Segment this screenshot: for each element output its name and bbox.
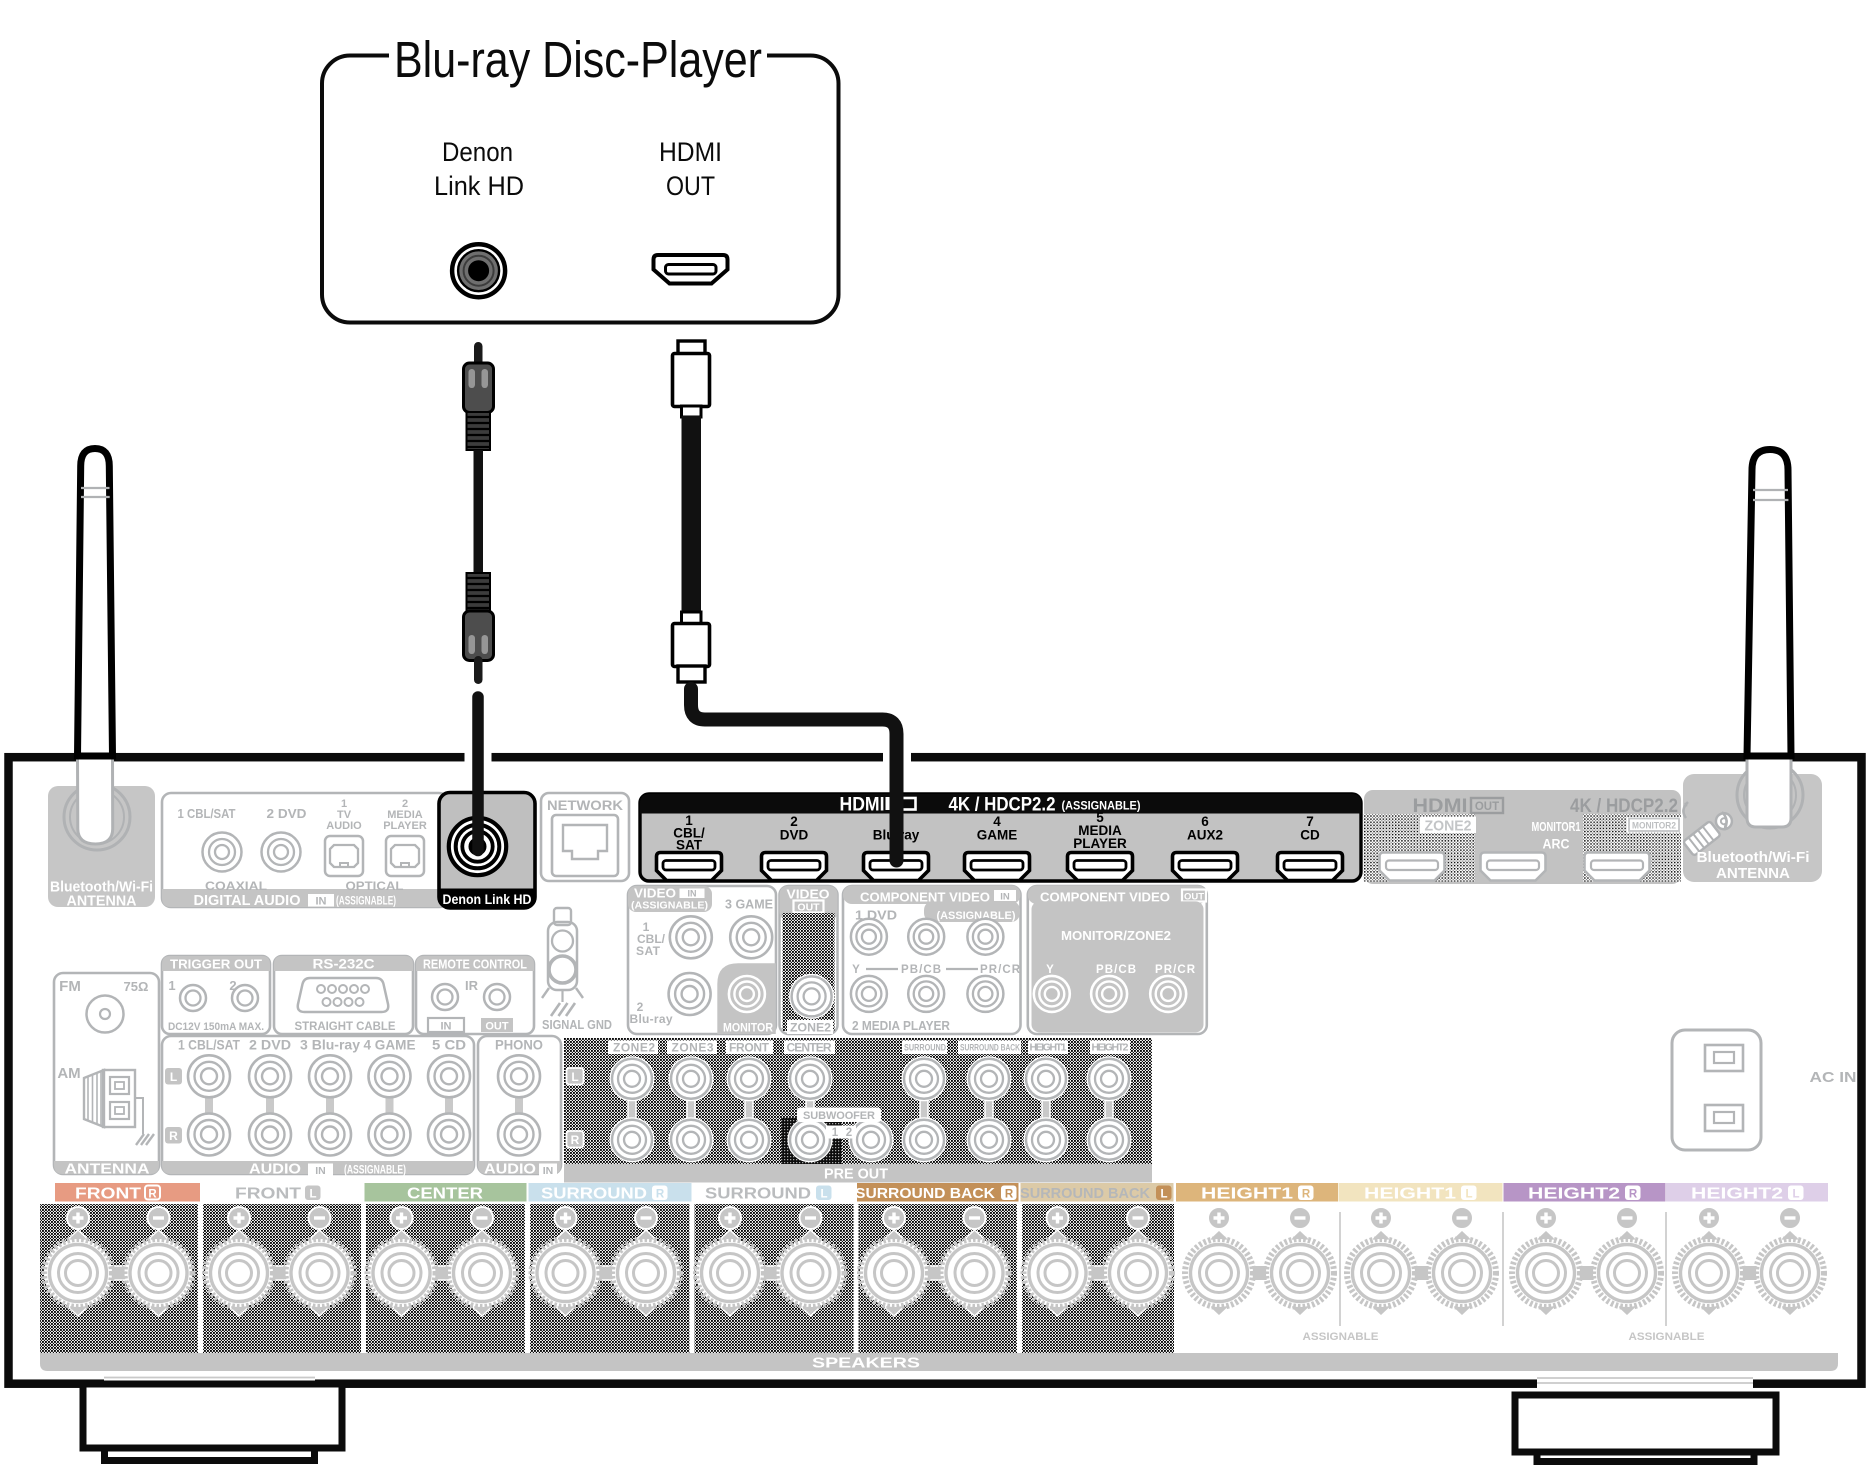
svg-text:AUX2: AUX2	[1187, 828, 1223, 843]
svg-text:SURROUND: SURROUND	[705, 1186, 811, 1203]
svg-text:SAT: SAT	[636, 944, 661, 958]
svg-text:1: 1	[168, 978, 175, 993]
svg-text:HDMI: HDMI	[659, 137, 722, 167]
svg-text:HEIGHT1: HEIGHT1	[1201, 1186, 1293, 1203]
svg-text:STRAIGHT CABLE: STRAIGHT CABLE	[295, 1019, 396, 1033]
svg-text:MONITOR2: MONITOR2	[1632, 821, 1676, 832]
svg-text:GAME: GAME	[977, 828, 1018, 843]
svg-text:Link HD: Link HD	[434, 171, 524, 201]
svg-text:PHONO: PHONO	[495, 1038, 543, 1053]
svg-text:HEIGHT1: HEIGHT1	[1030, 1042, 1067, 1054]
svg-text:ANTENNA: ANTENNA	[65, 1162, 151, 1178]
svg-text:R: R	[1629, 1189, 1638, 1201]
svg-text:FM: FM	[59, 978, 81, 995]
svg-text:R: R	[148, 1189, 157, 1201]
svg-text:FRONT: FRONT	[729, 1041, 770, 1055]
svg-text:MONITOR/ZONE2: MONITOR/ZONE2	[1061, 928, 1171, 943]
svg-text:L: L	[1465, 1189, 1472, 1201]
svg-text:R: R	[1005, 1189, 1014, 1201]
svg-text:Y: Y	[852, 964, 860, 976]
svg-text:OUT: OUT	[485, 1021, 509, 1033]
svg-text:CD: CD	[1300, 828, 1320, 843]
svg-text:SUBWOOFER: SUBWOOFER	[803, 1110, 875, 1122]
svg-text:ZONE2: ZONE2	[613, 1041, 655, 1055]
svg-text:Blu-ray Disc-Player: Blu-ray Disc-Player	[394, 31, 762, 88]
svg-text:(ASSIGNABLE): (ASSIGNABLE)	[631, 900, 708, 912]
svg-text:PLAYER: PLAYER	[383, 820, 427, 832]
svg-text:ZONE3: ZONE3	[672, 1041, 714, 1055]
svg-text:HDMI: HDMI	[840, 794, 885, 816]
svg-text:DIGITAL AUDIO: DIGITAL AUDIO	[194, 892, 301, 909]
svg-text:2 MEDIA PLAYER: 2 MEDIA PLAYER	[852, 1019, 950, 1033]
svg-text:FRONT: FRONT	[235, 1186, 301, 1203]
svg-text:HEIGHT2: HEIGHT2	[1691, 1186, 1783, 1203]
svg-text:R: R	[169, 1129, 178, 1143]
svg-text:VIDEO: VIDEO	[634, 887, 676, 901]
svg-text:AUDIO: AUDIO	[326, 820, 362, 832]
svg-text:SIGNAL GND: SIGNAL GND	[542, 1017, 612, 1032]
svg-text:DVD: DVD	[780, 828, 809, 843]
svg-text:OUT: OUT	[666, 171, 715, 201]
svg-text:AM: AM	[57, 1065, 80, 1082]
svg-text:OUT: OUT	[1184, 892, 1204, 903]
svg-text:(ASSIGNABLE): (ASSIGNABLE)	[344, 1165, 406, 1177]
svg-text:MONITOR: MONITOR	[723, 1023, 774, 1035]
svg-text:PB/CB: PB/CB	[901, 964, 941, 976]
svg-text:CENTER: CENTER	[407, 1186, 484, 1203]
svg-text:4K / HDCP2.2: 4K / HDCP2.2	[1570, 796, 1678, 817]
svg-text:SURROUND BACK: SURROUND BACK	[855, 1186, 996, 1202]
svg-text:SURROUND BACK: SURROUND BACK	[1020, 1186, 1151, 1202]
svg-text:SPEAKERS: SPEAKERS	[812, 1355, 920, 1372]
svg-text:R: R	[656, 1189, 665, 1201]
svg-text:SURROUND BACK: SURROUND BACK	[960, 1043, 1020, 1053]
svg-text:ANTENNA: ANTENNA	[1716, 865, 1790, 882]
svg-text:4 GAME: 4 GAME	[364, 1038, 416, 1053]
svg-text:ANTENNA: ANTENNA	[67, 894, 138, 910]
svg-text:1 CBL/SAT: 1 CBL/SAT	[178, 1038, 241, 1053]
svg-text:R: R	[1302, 1189, 1311, 1201]
svg-text:AUDIO: AUDIO	[484, 1162, 536, 1178]
svg-text:COAXIAL: COAXIAL	[205, 879, 267, 893]
svg-text:CENTER: CENTER	[787, 1041, 832, 1055]
svg-text:L: L	[571, 1070, 578, 1084]
svg-text:2 DVD: 2 DVD	[267, 806, 307, 821]
svg-text:75Ω: 75Ω	[124, 979, 149, 994]
svg-text:L: L	[1160, 1189, 1167, 1201]
svg-text:ASSIGNABLE: ASSIGNABLE	[1303, 1331, 1379, 1343]
svg-text:ARC: ARC	[1543, 837, 1570, 852]
svg-text:DC12V 150mA MAX.: DC12V 150mA MAX.	[168, 1021, 264, 1033]
svg-text:ASSIGNABLE: ASSIGNABLE	[1629, 1331, 1705, 1343]
svg-text:SURROUND: SURROUND	[904, 1043, 946, 1054]
svg-text:Denon Link HD: Denon Link HD	[443, 891, 532, 907]
svg-text:IN: IN	[441, 1021, 452, 1033]
svg-text:HEIGHT1: HEIGHT1	[1364, 1186, 1456, 1203]
svg-text:HEIGHT2: HEIGHT2	[1528, 1186, 1620, 1203]
svg-text:REMOTE CONTROL: REMOTE CONTROL	[423, 958, 527, 972]
svg-text:IN: IN	[316, 896, 327, 908]
svg-text:ZONE2: ZONE2	[1425, 818, 1472, 835]
svg-text:FRONT: FRONT	[75, 1186, 141, 1203]
svg-text:1 CBL/SAT: 1 CBL/SAT	[178, 806, 236, 821]
svg-text:COMPONENT VIDEO: COMPONENT VIDEO	[860, 890, 990, 905]
svg-text:Y: Y	[1046, 964, 1054, 976]
svg-text:HEIGHT2: HEIGHT2	[1092, 1042, 1129, 1054]
svg-text:2 DVD: 2 DVD	[249, 1038, 291, 1053]
svg-text:IN: IN	[688, 889, 697, 899]
svg-text:R: R	[571, 1133, 580, 1147]
svg-text:OPTICAL: OPTICAL	[346, 879, 404, 893]
svg-text:(ASSIGNABLE): (ASSIGNABLE)	[336, 896, 396, 908]
svg-text:5 CD: 5 CD	[432, 1038, 466, 1053]
svg-text:SAT: SAT	[676, 838, 703, 853]
svg-text:HDMI: HDMI	[1413, 796, 1468, 817]
svg-text:RS-232C: RS-232C	[313, 957, 375, 972]
svg-text:OUT: OUT	[1475, 801, 1499, 813]
svg-text:PLAYER: PLAYER	[1073, 836, 1127, 851]
svg-text:Blu-ray: Blu-ray	[630, 1012, 673, 1026]
svg-text:Bluetooth/Wi-Fi: Bluetooth/Wi-Fi	[1697, 849, 1810, 866]
svg-text:1: 1	[832, 1127, 839, 1139]
svg-text:SURROUND: SURROUND	[541, 1186, 647, 1203]
svg-text:PR/CR: PR/CR	[980, 964, 1021, 976]
svg-text:L: L	[309, 1189, 316, 1201]
svg-text:IN: IN	[315, 1165, 326, 1177]
svg-text:PB/CB: PB/CB	[1096, 964, 1136, 976]
svg-text:2: 2	[846, 1127, 852, 1139]
svg-text:4K / HDCP2.2: 4K / HDCP2.2	[949, 794, 1056, 816]
svg-text:L: L	[820, 1189, 827, 1201]
svg-text:TRIGGER OUT: TRIGGER OUT	[170, 957, 262, 972]
svg-text:IN: IN	[543, 1165, 554, 1177]
svg-text:3 GAME: 3 GAME	[725, 898, 773, 912]
svg-text:OUT: OUT	[797, 902, 820, 914]
svg-text:AUDIO: AUDIO	[249, 1162, 301, 1178]
svg-text:PR/CR: PR/CR	[1155, 964, 1196, 976]
svg-text:MONITOR1: MONITOR1	[1532, 820, 1581, 834]
svg-text:IN: IN	[1000, 892, 1010, 903]
svg-text:IR: IR	[465, 978, 479, 993]
svg-text:L: L	[170, 1070, 177, 1084]
svg-text:Denon: Denon	[442, 137, 513, 167]
svg-text:PRE OUT: PRE OUT	[824, 1166, 888, 1183]
svg-text:NETWORK: NETWORK	[547, 798, 623, 813]
svg-text:AC IN: AC IN	[1810, 1069, 1857, 1086]
svg-text:L: L	[1792, 1189, 1799, 1201]
svg-text:ZONE2: ZONE2	[790, 1023, 831, 1035]
svg-text:3 Blu-ray: 3 Blu-ray	[300, 1038, 360, 1053]
